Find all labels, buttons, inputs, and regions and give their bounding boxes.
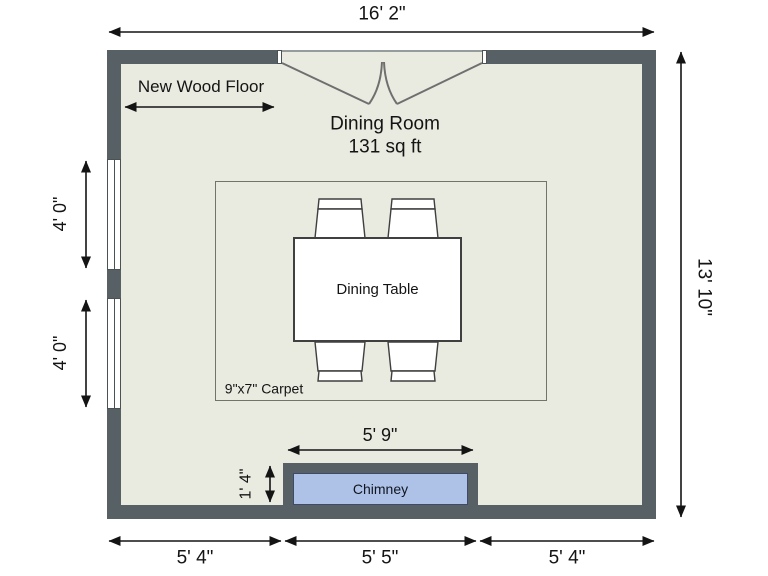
door-leaf-right bbox=[397, 63, 482, 104]
chair-bottom-right bbox=[388, 342, 438, 381]
dim-label-chimney-width: 5' 9" bbox=[363, 425, 398, 447]
carpet-label: 9"x7" Carpet bbox=[225, 381, 303, 398]
door-swing-right bbox=[384, 62, 397, 104]
chair-top-left bbox=[315, 199, 365, 238]
dim-label-bottom-right: 5' 4" bbox=[549, 548, 586, 571]
dim-label-window-upper: 4' 0" bbox=[50, 197, 72, 232]
dim-label-total-height: 13' 10" bbox=[692, 258, 715, 316]
dim-label-bottom-left: 5' 4" bbox=[177, 548, 214, 571]
dim-label-chimney-depth: 1' 4" bbox=[236, 469, 255, 500]
dim-label-window-lower: 4' 0" bbox=[50, 336, 72, 371]
floorplan-canvas: Chimney bbox=[0, 0, 768, 576]
double-door bbox=[282, 62, 482, 104]
chair-bottom-left bbox=[315, 342, 365, 381]
chair-top-right bbox=[388, 199, 438, 238]
dining-table-label: Dining Table bbox=[336, 281, 418, 298]
room-name-label: Dining Room bbox=[330, 114, 440, 137]
door-swing-left bbox=[369, 62, 382, 104]
dim-label-total-width: 16' 2" bbox=[358, 4, 405, 27]
door-leaf-left bbox=[282, 63, 369, 104]
dim-label-bottom-center: 5' 5" bbox=[362, 548, 399, 571]
room-area-label: 131 sq ft bbox=[349, 137, 422, 160]
floor-note-label: New Wood Floor bbox=[138, 77, 264, 97]
dining-table: Dining Table bbox=[293, 237, 462, 342]
